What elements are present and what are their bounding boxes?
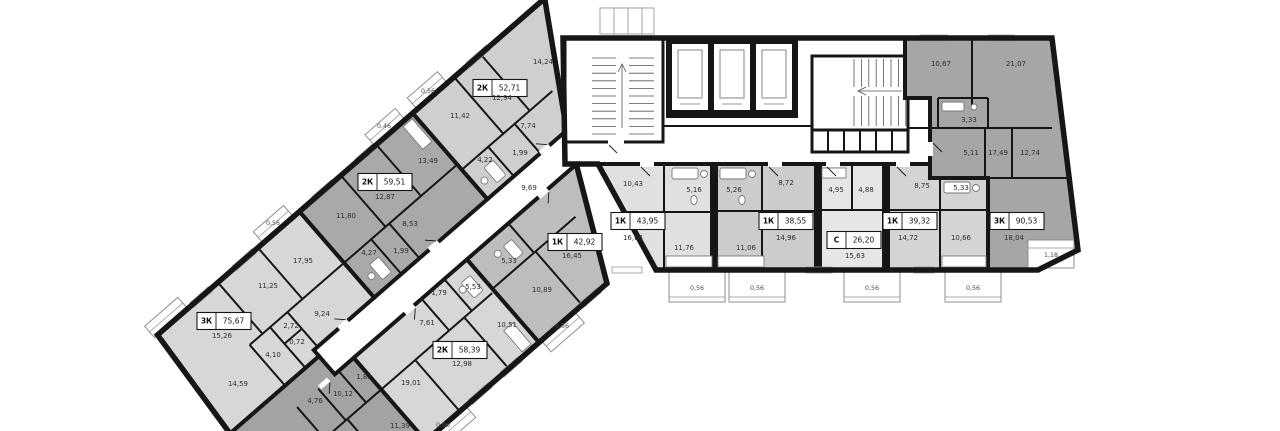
room-area: 12,74 xyxy=(1020,149,1041,157)
svg-text:2К: 2К xyxy=(437,346,449,355)
room-area: 18,04 xyxy=(1004,234,1025,242)
room-area: 4,27 xyxy=(361,249,377,257)
room-area: 4,10 xyxy=(265,351,281,359)
svg-text:90,53: 90,53 xyxy=(1016,217,1038,226)
room-area: 16,45 xyxy=(562,252,582,260)
room-area: 8,72 xyxy=(778,179,794,187)
room-area: 11,76 xyxy=(674,244,695,252)
floor-plan: 2К52,71 2К59,51 3К75,67 2К58,39 1К42,92 … xyxy=(0,0,1280,431)
room-area: 2,72 xyxy=(283,322,299,330)
svg-text:59,51: 59,51 xyxy=(384,178,406,187)
svg-text:2К: 2К xyxy=(362,178,374,187)
room-area: 7,74 xyxy=(520,122,536,130)
room-area: 12,98 xyxy=(452,360,472,368)
svg-text:1К: 1К xyxy=(763,217,775,226)
room-area: 10,67 xyxy=(931,60,951,68)
room-area: 10,66 xyxy=(951,234,972,242)
room-area: 14,24 xyxy=(533,58,554,66)
apartment-label-2k-58-39[interactable]: 2К58,39 xyxy=(433,342,487,359)
room-area: 12,87 xyxy=(375,193,395,201)
balcony-area: 0,56 xyxy=(421,88,435,95)
svg-text:39,32: 39,32 xyxy=(909,217,931,226)
room-area: 9,69 xyxy=(521,184,537,192)
svg-text:38,55: 38,55 xyxy=(785,217,807,226)
room-area: 7,61 xyxy=(419,319,435,327)
room-area: 15,26 xyxy=(212,332,233,340)
room-area: 12,94 xyxy=(492,94,513,102)
svg-text:58,39: 58,39 xyxy=(459,346,481,355)
svg-text:3К: 3К xyxy=(201,317,213,326)
elevator-icon xyxy=(714,44,750,110)
svg-text:1К: 1К xyxy=(887,217,899,226)
room-area: 11,06 xyxy=(736,244,757,252)
elevator-icon xyxy=(756,44,792,110)
room-area: 8,75 xyxy=(914,182,930,190)
room-area: 10,51 xyxy=(497,321,517,329)
apartment-label-1k-43-95[interactable]: 1К43,95 xyxy=(611,213,665,230)
elevator-bank xyxy=(666,38,798,118)
room-area: 1,82 xyxy=(356,373,372,381)
room-area: 4,88 xyxy=(858,186,874,194)
room-area: 5,11 xyxy=(963,149,979,157)
svg-text:26,20: 26,20 xyxy=(853,236,875,245)
stairwell-left xyxy=(565,38,663,153)
apartment-label-3k-90-53[interactable]: 3К90,53 xyxy=(990,213,1044,230)
apartment-label-1k-38-55[interactable]: 1К38,55 xyxy=(759,213,813,230)
room-area: 11,42 xyxy=(450,112,470,120)
room-area: 11,39 xyxy=(390,422,410,430)
room-area: 9,24 xyxy=(314,310,330,318)
svg-text:3К: 3К xyxy=(994,217,1006,226)
room-area: 1,99 xyxy=(393,247,409,255)
stairwell-right xyxy=(812,56,908,152)
apartment-label-1k-42-92[interactable]: 1К42,92 xyxy=(548,234,602,251)
room-area: 14,59 xyxy=(228,380,248,388)
elevator-icon xyxy=(672,44,708,110)
room-area: 4,95 xyxy=(828,186,844,194)
balcony-area: 0,46 xyxy=(377,123,391,130)
svg-text:С: С xyxy=(834,236,840,245)
room-area: 21,07 xyxy=(1006,60,1026,68)
room-area: 14,96 xyxy=(776,234,797,242)
room-area: 4,22 xyxy=(477,156,493,164)
room-area: 10,12 xyxy=(333,390,353,398)
svg-text:42,92: 42,92 xyxy=(574,238,596,247)
balcony-area: 0,96 xyxy=(436,422,450,429)
room-area: 10,43 xyxy=(623,180,643,188)
room-area: 5,53 xyxy=(465,283,481,291)
svg-text:1К: 1К xyxy=(615,217,627,226)
apartment-label-1k-39-32[interactable]: 1К39,32 xyxy=(883,213,937,230)
room-area: 5,16 xyxy=(686,186,702,194)
room-area: 13,49 xyxy=(418,157,438,165)
room-area: 19,01 xyxy=(401,379,421,387)
apartment-label-s-26-20[interactable]: С26,20 xyxy=(827,232,881,249)
balcony-area: 0,56 xyxy=(266,220,280,227)
svg-text:52,71: 52,71 xyxy=(499,84,521,93)
svg-text:1К: 1К xyxy=(552,238,564,247)
room-area: 15,63 xyxy=(845,252,865,260)
balcony-area: 0,56 xyxy=(865,285,879,292)
room-area: 8,53 xyxy=(402,220,418,228)
room-area: 10,89 xyxy=(532,286,552,294)
apartment-label-3k-75-67[interactable]: 3К75,67 xyxy=(197,313,251,330)
room-area: 11,80 xyxy=(336,212,356,220)
balcony-area: 0,56 xyxy=(555,323,569,330)
room-area: 5,33 xyxy=(953,184,969,192)
balcony-area: 0,56 xyxy=(690,285,704,292)
room-area: 17,95 xyxy=(293,257,313,265)
room-area: 5,33 xyxy=(501,257,517,265)
balcony-area: 0,56 xyxy=(966,285,980,292)
room-area: 1,79 xyxy=(431,289,447,297)
svg-text:2К: 2К xyxy=(477,84,489,93)
room-area: 1,99 xyxy=(512,149,528,157)
room-area: 17,49 xyxy=(988,149,1008,157)
room-area: 14,72 xyxy=(898,234,918,242)
entrance-steps xyxy=(600,8,654,34)
svg-text:43,95: 43,95 xyxy=(637,217,659,226)
room-area: 11,25 xyxy=(258,282,278,290)
balcony-area: 0,56 xyxy=(750,285,764,292)
room-area: 16,64 xyxy=(623,234,644,242)
room-area: 3,33 xyxy=(961,116,977,124)
apartment-label-2k-59-51[interactable]: 2К59,51 xyxy=(358,174,412,191)
svg-text:75,67: 75,67 xyxy=(223,317,245,326)
balcony-area: 1,18 xyxy=(1044,252,1058,259)
room-area: 0,72 xyxy=(289,338,305,346)
room-area: 5,26 xyxy=(726,186,742,194)
room-area: 4,76 xyxy=(307,397,323,405)
